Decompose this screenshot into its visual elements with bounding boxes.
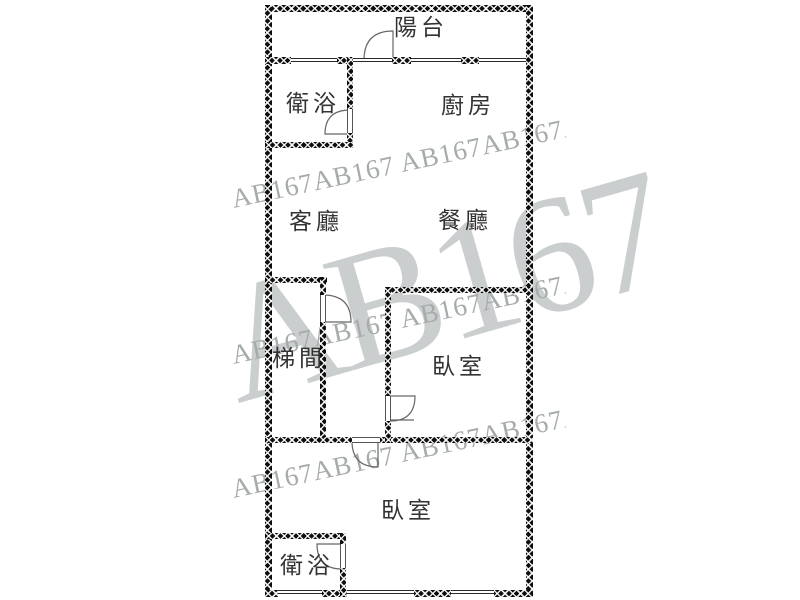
room-label-bedroom-lower: 臥室 [381,499,435,522]
floor-plan: AB167 AB167AB167 AB167AB167AB167 AB167AB… [0,0,800,600]
wall-middle-left [265,437,352,443]
door-opening-stairwell [320,295,326,322]
wall-bedroom-upper-top [385,287,533,293]
wall-balcony-seg [265,57,291,64]
door-bedroom-upper [390,396,415,421]
wall-outer-right [526,5,533,597]
room-label-kitchen: 廚房 [441,94,495,117]
door-opening-bedroom-upper [385,396,391,421]
wall-balcony-seg [392,57,411,64]
wall-balcony-seg [461,57,479,64]
wall-bathroom-top-right-upper [347,57,353,109]
wall-outer-bottom-seg [494,590,533,597]
wall-bathroom-bottom-right-upper [340,533,346,544]
door-opening-bathroom-bottom [340,544,346,568]
wall-stairwell-right-lower [320,322,326,443]
wall-stairwell-top [265,277,327,283]
door-stairwell [323,295,351,322]
door-balcony [364,31,393,60]
wall-outer-bottom-seg [414,590,451,597]
wall-stairwell-right-upper [320,277,326,295]
wall-bathroom-bottom-right-lower [340,568,346,597]
wall-bedroom-upper-left-upper [385,287,391,396]
room-label-bathroom-bottom: 衛浴 [280,554,334,577]
room-label-bedroom-upper: 臥室 [432,355,486,378]
wall-outer-left [265,5,272,597]
room-label-balcony: 陽台 [394,16,448,39]
door-opening-bedroom-lower [352,437,380,443]
wall-outer-top [265,5,533,12]
wall-middle-right [380,437,533,443]
wall-bedroom-upper-left-lower [385,421,391,443]
room-label-living-room: 客廳 [289,210,343,233]
wall-outer-bottom-seg [265,590,278,597]
door-opening-bathroom-top [347,109,353,133]
wall-bathroom-bottom-top [265,533,343,539]
bottom-window-line [272,590,526,594]
room-label-stairwell: 梯間 [272,347,326,370]
room-label-dining-room: 餐廳 [438,209,492,232]
room-label-bathroom-top: 衛浴 [286,92,340,115]
door-bedroom-lower [352,441,378,467]
wall-bathroom-top-bottom [265,142,353,148]
